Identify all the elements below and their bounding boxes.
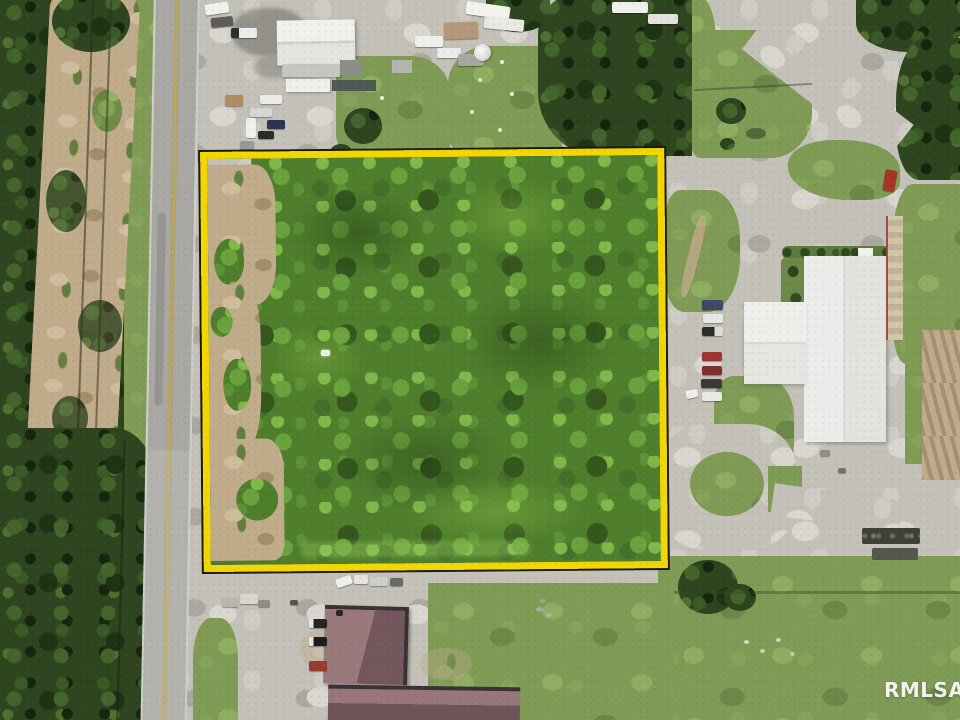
parked-car xyxy=(702,327,723,336)
property-boundary xyxy=(200,148,668,572)
mauve-building xyxy=(323,605,409,685)
mow-line xyxy=(660,591,960,594)
road-tar-streak xyxy=(154,212,166,405)
grass-speck xyxy=(470,110,474,114)
parked-car xyxy=(702,352,722,361)
dirt-patch xyxy=(420,648,472,680)
covered-walkway xyxy=(886,216,903,340)
satellite-dish xyxy=(474,44,491,61)
scrub-regrowth xyxy=(223,359,251,411)
trailer-white xyxy=(286,79,330,92)
grass-object xyxy=(540,599,545,603)
trailer-dark xyxy=(390,578,403,586)
scrub-regrowth xyxy=(236,478,278,520)
equipment-trailer xyxy=(862,528,920,544)
grass-object xyxy=(546,613,552,617)
tree-clump-lot xyxy=(344,108,382,144)
car-silver xyxy=(370,577,388,586)
pallet-stack xyxy=(225,95,243,106)
car-black xyxy=(258,131,274,139)
parked-car xyxy=(702,300,723,310)
grass-debris xyxy=(790,652,795,656)
bush-cluster xyxy=(716,98,746,124)
aerial-property-photo: RMLSA xyxy=(0,0,960,720)
grass-speck xyxy=(498,128,502,132)
car-gray xyxy=(240,141,254,149)
grass-speck xyxy=(510,92,514,96)
parked-car xyxy=(701,379,722,388)
grass-debris xyxy=(760,649,765,653)
parked-car-red xyxy=(309,661,327,671)
white-vehicle-in-trees xyxy=(321,350,330,356)
watermark: RMLSA xyxy=(884,678,960,702)
parked-car xyxy=(703,314,723,323)
grass-speck xyxy=(380,96,384,100)
van-white xyxy=(415,36,443,47)
parked-car xyxy=(702,392,722,401)
grass-object xyxy=(536,607,543,612)
shed-gray xyxy=(282,64,340,77)
equipment-small xyxy=(838,468,846,473)
dirt-berm xyxy=(922,330,960,480)
parked-car xyxy=(702,366,722,375)
long-mauve-building xyxy=(328,685,520,720)
van-white xyxy=(260,95,282,104)
forest-southwest xyxy=(0,428,164,720)
event-building-wing xyxy=(744,302,806,384)
car-white xyxy=(354,575,368,584)
equipment-small xyxy=(240,594,258,604)
grass-speck xyxy=(500,60,504,64)
scrub-regrowth xyxy=(211,307,233,337)
shed-small xyxy=(340,60,362,75)
loop-road-infield xyxy=(690,452,764,516)
corridor-scrub xyxy=(46,170,86,232)
tan-trailer xyxy=(444,21,479,39)
semi-trailer xyxy=(612,2,648,13)
grass-roadside-south xyxy=(193,618,238,720)
bush-small xyxy=(720,138,735,150)
container-dark xyxy=(332,80,376,91)
roof-vent xyxy=(336,610,343,616)
trailer-white xyxy=(648,14,678,24)
grass-debris xyxy=(744,640,749,644)
equipment-small xyxy=(820,450,830,456)
grass-debris xyxy=(776,638,781,642)
grass-speck xyxy=(478,78,482,82)
van-white xyxy=(250,108,272,117)
event-building-main xyxy=(804,256,886,442)
grass-shadow-patch xyxy=(746,128,766,139)
road-worn-patch xyxy=(142,450,189,720)
warehouse-building xyxy=(277,19,356,65)
tree-clump-small xyxy=(724,584,756,611)
canopy-light-strip xyxy=(301,540,531,558)
lawn-west-of-building xyxy=(666,190,740,312)
scrub-regrowth xyxy=(214,239,244,285)
shed-small xyxy=(392,60,412,73)
parked-car xyxy=(309,619,327,628)
equipment-small xyxy=(222,598,238,607)
car-dark-blue xyxy=(267,120,285,129)
trees-right-edge xyxy=(896,38,960,180)
equipment-trailer xyxy=(872,548,918,560)
equipment-small xyxy=(258,600,270,607)
parked-car xyxy=(309,637,327,646)
trailer-vertical xyxy=(246,118,256,138)
semi-truck xyxy=(231,28,257,38)
equipment-small xyxy=(290,600,298,605)
